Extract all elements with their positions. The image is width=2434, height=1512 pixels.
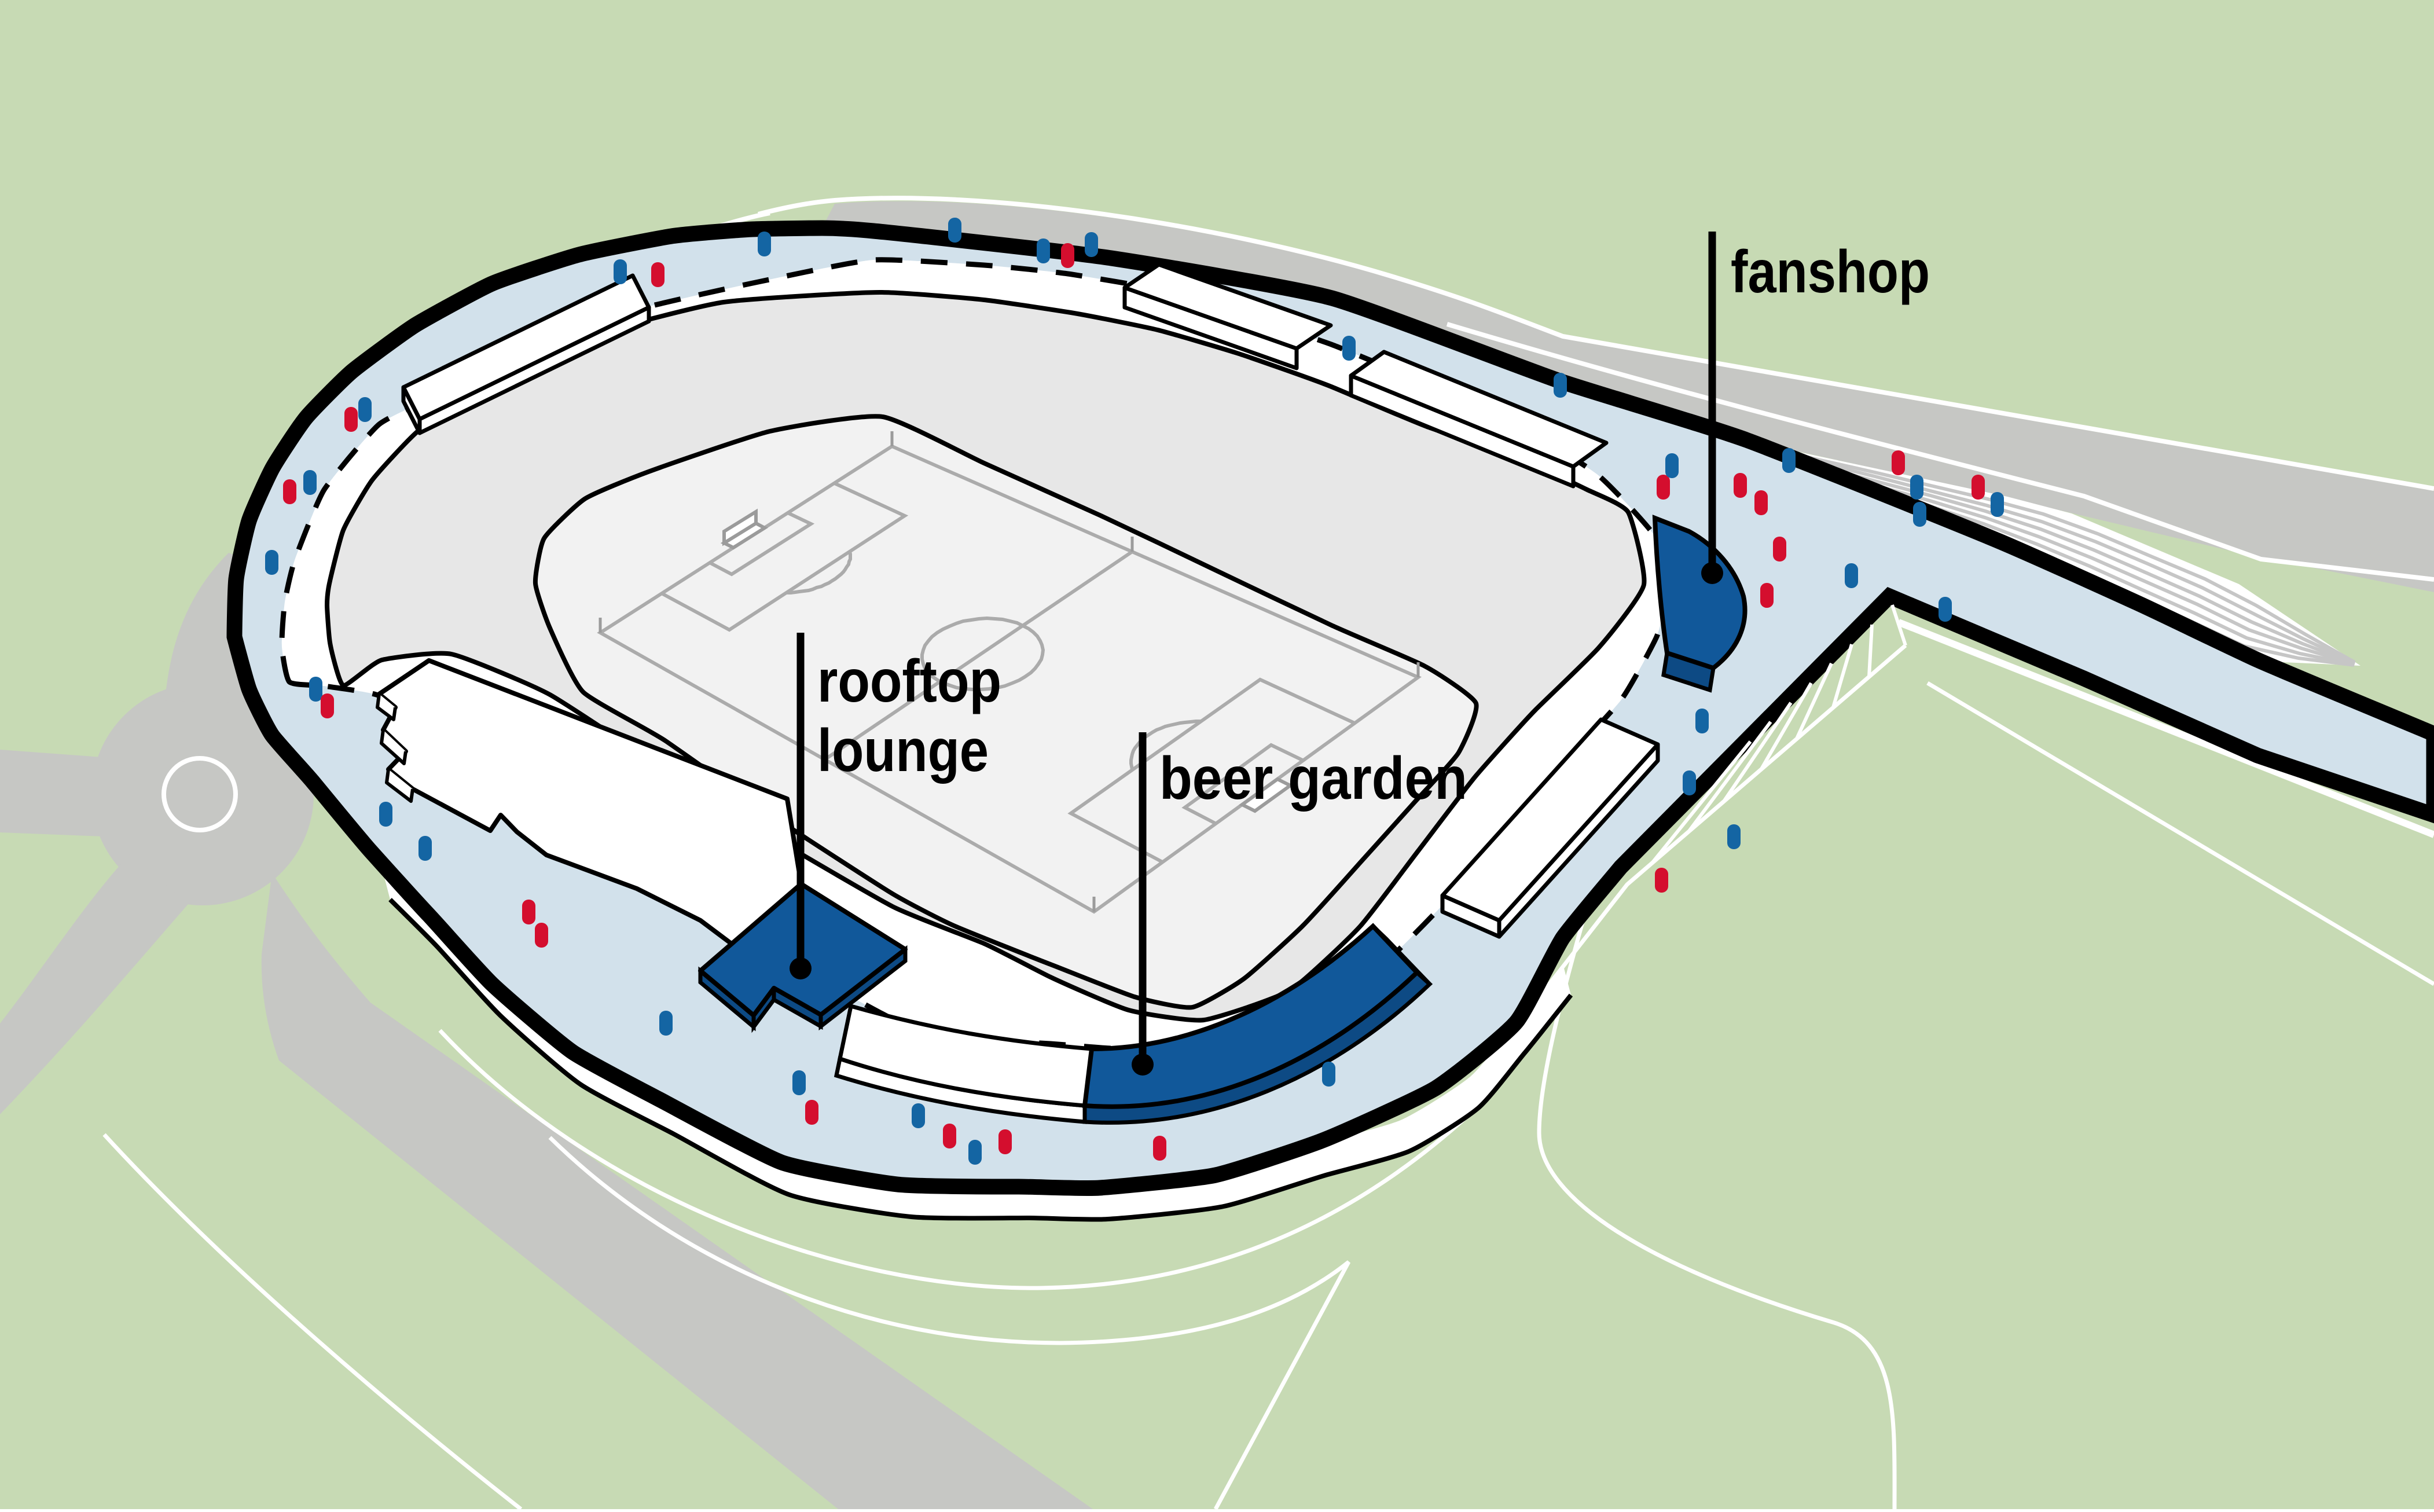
svg-text:lounge: lounge (817, 717, 989, 784)
svg-text:fanshop: fanshop (1731, 238, 1930, 306)
svg-text:rooftop: rooftop (817, 648, 1001, 715)
svg-text:beer garden: beer garden (1159, 745, 1467, 812)
